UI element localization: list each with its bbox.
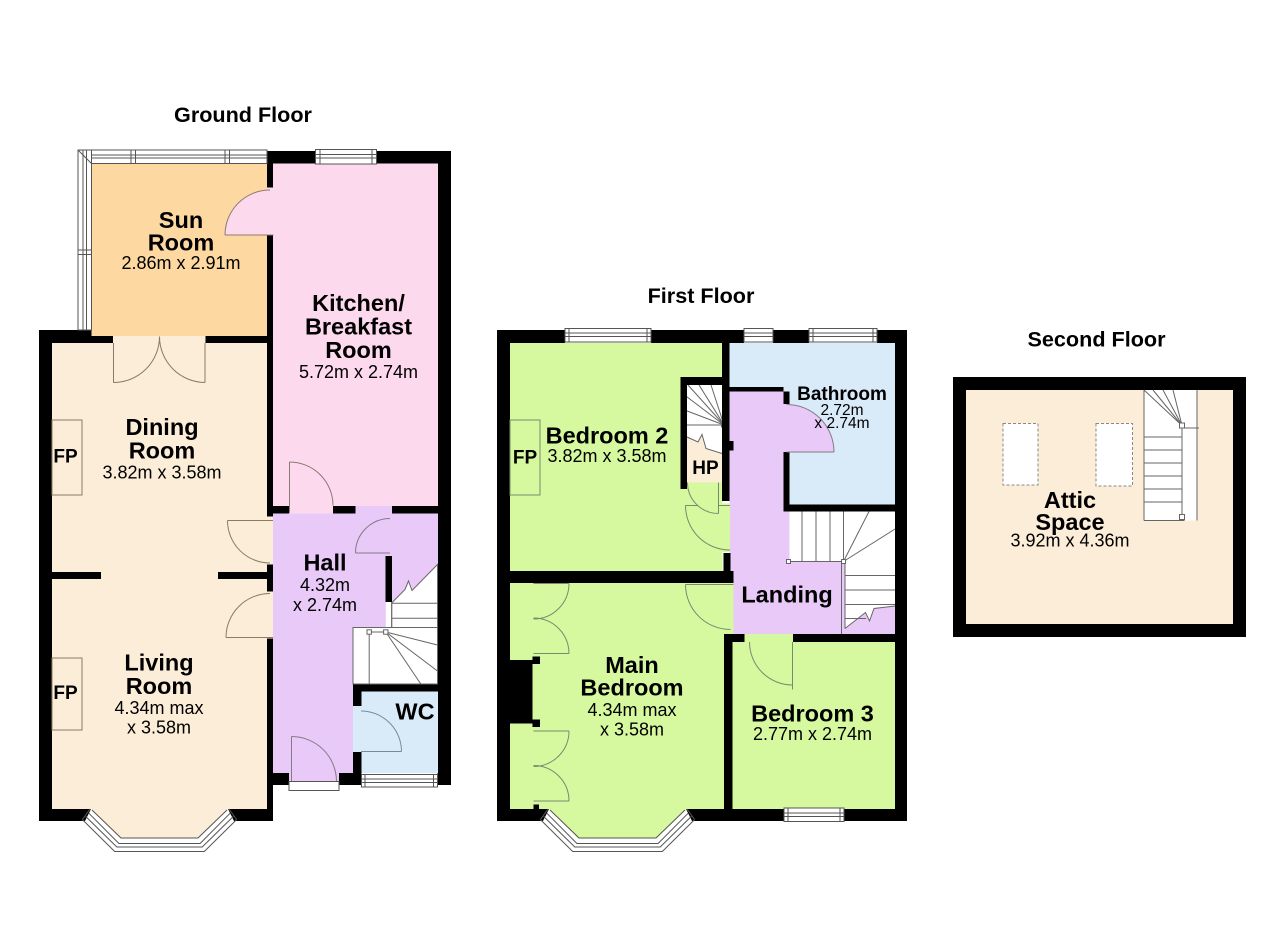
svg-text:First Floor: First Floor	[648, 283, 755, 308]
svg-text:Kitchen/: Kitchen/	[312, 290, 405, 316]
svg-text:Room: Room	[325, 337, 392, 363]
svg-text:HP: HP	[692, 458, 719, 479]
svg-text:4.34m max: 4.34m max	[114, 698, 203, 718]
svg-text:WC: WC	[395, 699, 434, 725]
svg-text:3.92m x 4.36m: 3.92m x 4.36m	[1010, 531, 1129, 551]
svg-text:Bedroom: Bedroom	[580, 675, 683, 701]
svg-text:x 2.74m: x 2.74m	[814, 415, 869, 432]
svg-text:4.32m: 4.32m	[300, 575, 350, 595]
svg-text:Room: Room	[126, 673, 193, 699]
svg-text:Landing: Landing	[741, 582, 832, 608]
svg-text:Room: Room	[148, 230, 215, 256]
svg-text:Dining: Dining	[125, 414, 198, 440]
svg-text:FP: FP	[53, 683, 78, 704]
svg-text:Ground Floor: Ground Floor	[174, 102, 313, 127]
svg-text:Hall: Hall	[303, 550, 346, 576]
svg-text:FP: FP	[513, 448, 538, 469]
svg-text:Second Floor: Second Floor	[1028, 327, 1167, 352]
svg-text:2.77m x 2.74m: 2.77m x 2.74m	[753, 724, 872, 744]
svg-text:2.86m x 2.91m: 2.86m x 2.91m	[121, 253, 240, 273]
svg-text:x 3.58m: x 3.58m	[600, 720, 664, 740]
svg-text:4.34m max: 4.34m max	[587, 700, 676, 720]
svg-text:3.82m x 3.58m: 3.82m x 3.58m	[102, 463, 221, 483]
svg-text:Bedroom 3: Bedroom 3	[751, 701, 874, 727]
svg-text:3.82m x 3.58m: 3.82m x 3.58m	[547, 446, 666, 466]
svg-text:Bedroom 2: Bedroom 2	[546, 423, 669, 449]
svg-text:5.72m x 2.74m: 5.72m x 2.74m	[299, 362, 418, 382]
svg-text:Breakfast: Breakfast	[305, 314, 412, 340]
svg-text:Room: Room	[129, 438, 196, 464]
svg-text:x 3.58m: x 3.58m	[127, 718, 191, 738]
svg-text:Living: Living	[124, 650, 193, 676]
svg-text:x 2.74m: x 2.74m	[293, 595, 357, 615]
svg-text:FP: FP	[53, 447, 78, 468]
